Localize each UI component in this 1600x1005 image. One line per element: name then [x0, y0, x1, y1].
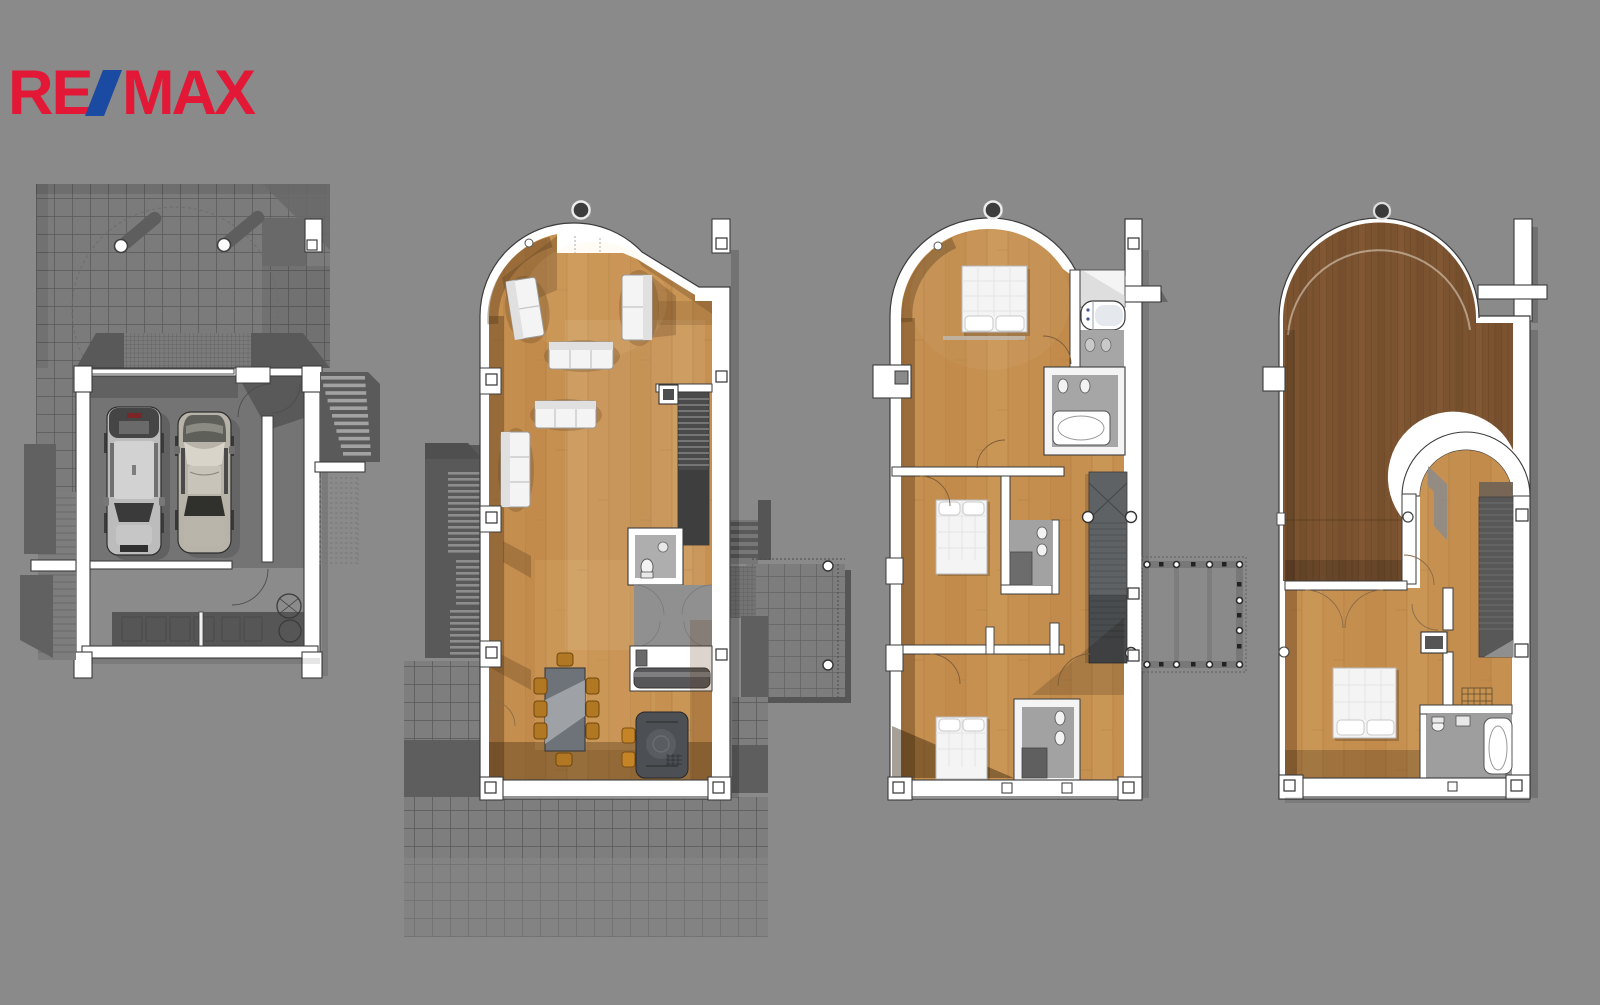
svg-text:MAX: MAX [122, 58, 256, 128]
svg-text:RE: RE [8, 58, 92, 128]
